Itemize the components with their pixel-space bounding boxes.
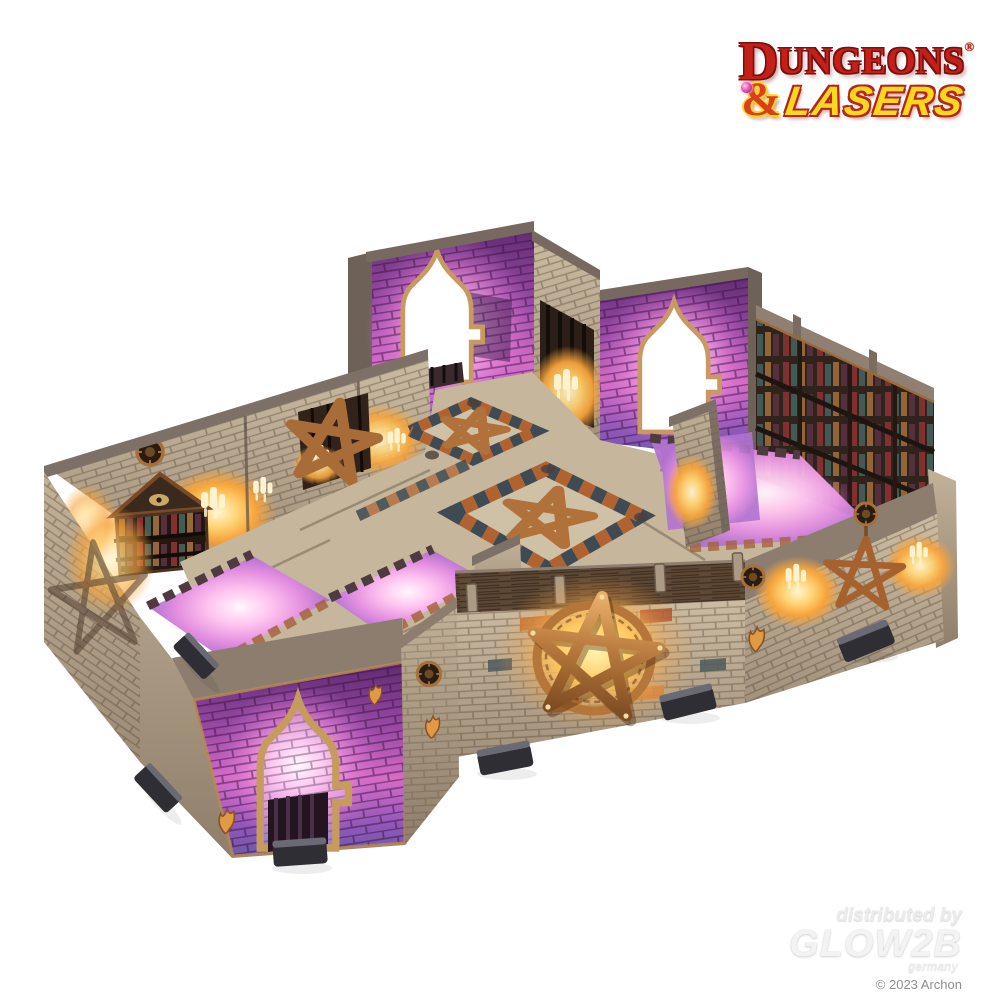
- dungeon-terrain-illustration: [0, 0, 1000, 1000]
- copyright-notice: © 2023 Archon: [789, 977, 962, 992]
- watermark-brand: GLOW2B: [789, 927, 962, 961]
- logo-ampersand: &: [741, 73, 781, 126]
- logo-lasers-text: LASERS: [783, 81, 967, 122]
- logo-lasers-line: & LASERS: [739, 76, 964, 124]
- front-corner-pilaster: [399, 597, 459, 845]
- distributor-watermark: distributed by GLOW2B germany © 2023 Arc…: [789, 905, 962, 992]
- front-pentagram-wall: [455, 553, 745, 757]
- dungeons-and-lasers-logo: DUNGEONS® & LASERS: [739, 34, 964, 124]
- product-photo: [0, 0, 1000, 1000]
- page: { "page": { "background_color": "#ffffff…: [0, 0, 1000, 1000]
- registered-trademark-symbol: ®: [964, 39, 974, 54]
- ampersand-gem-icon: [741, 82, 752, 93]
